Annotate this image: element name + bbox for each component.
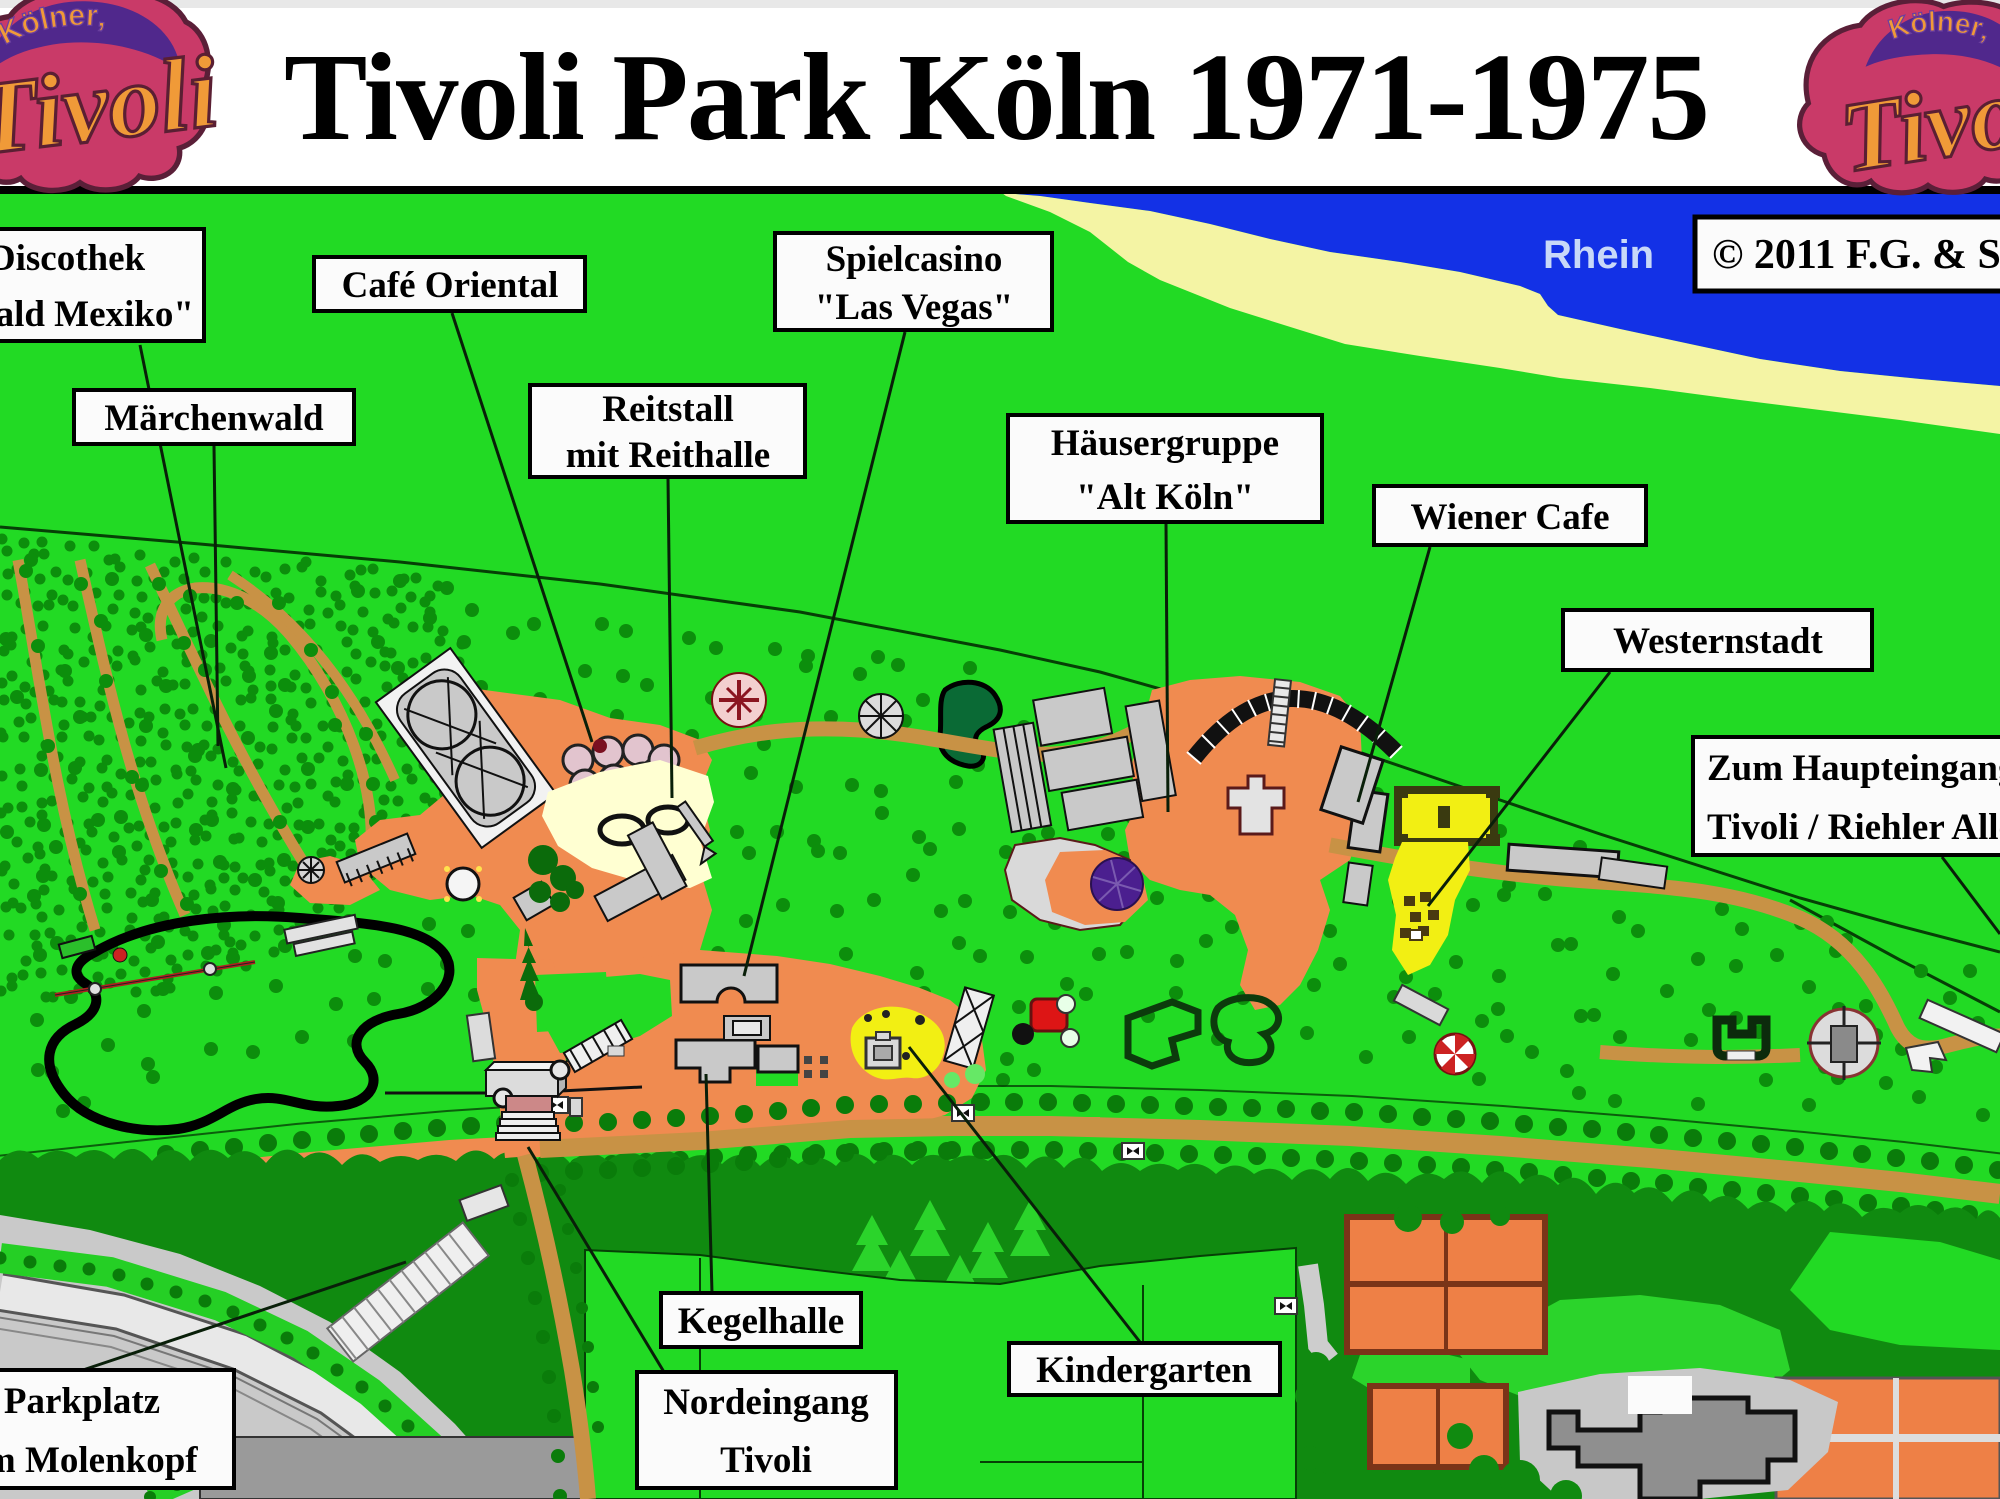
svg-text:Café Oriental: Café Oriental [342,265,559,306]
svg-text:Parkplatz: Parkplatz [4,1381,160,1422]
svg-text:Wiener Cafe: Wiener Cafe [1410,497,1609,538]
svg-text:Tivoli Park Köln 1971-1975: Tivoli Park Köln 1971-1975 [284,29,1710,167]
svg-text:"Alt Köln": "Alt Köln" [1076,477,1254,518]
svg-text:am Molenkopf: am Molenkopf [0,1440,198,1481]
svg-text:Rhein: Rhein [1543,233,1654,277]
svg-text:Tivoli / Riehler Allee: Tivoli / Riehler Allee [1707,807,2000,848]
svg-text:Discothek: Discothek [0,238,146,279]
svg-text:Kegelhalle: Kegelhalle [678,1301,844,1342]
svg-text:Zum Haupteingang: Zum Haupteingang [1707,748,2000,789]
svg-text:Kindergarten: Kindergarten [1036,1350,1252,1391]
svg-text:© 2011 F.G. & S: © 2011 F.G. & S [1712,232,2000,278]
svg-text:"Las Vegas": "Las Vegas" [815,287,1013,328]
svg-text:Nordeingang: Nordeingang [663,1382,869,1423]
svg-text:mit Reithalle: mit Reithalle [566,435,770,476]
svg-text:Reitstall: Reitstall [602,389,734,430]
svg-text:"Wald Mexiko": "Wald Mexiko" [0,294,194,335]
svg-text:Spielcasino: Spielcasino [826,239,1003,280]
svg-text:Tivoli: Tivoli [720,1440,812,1481]
svg-text:Häusergruppe: Häusergruppe [1051,423,1279,464]
svg-text:Märchenwald: Märchenwald [104,398,324,439]
svg-text:Westernstadt: Westernstadt [1613,621,1823,662]
